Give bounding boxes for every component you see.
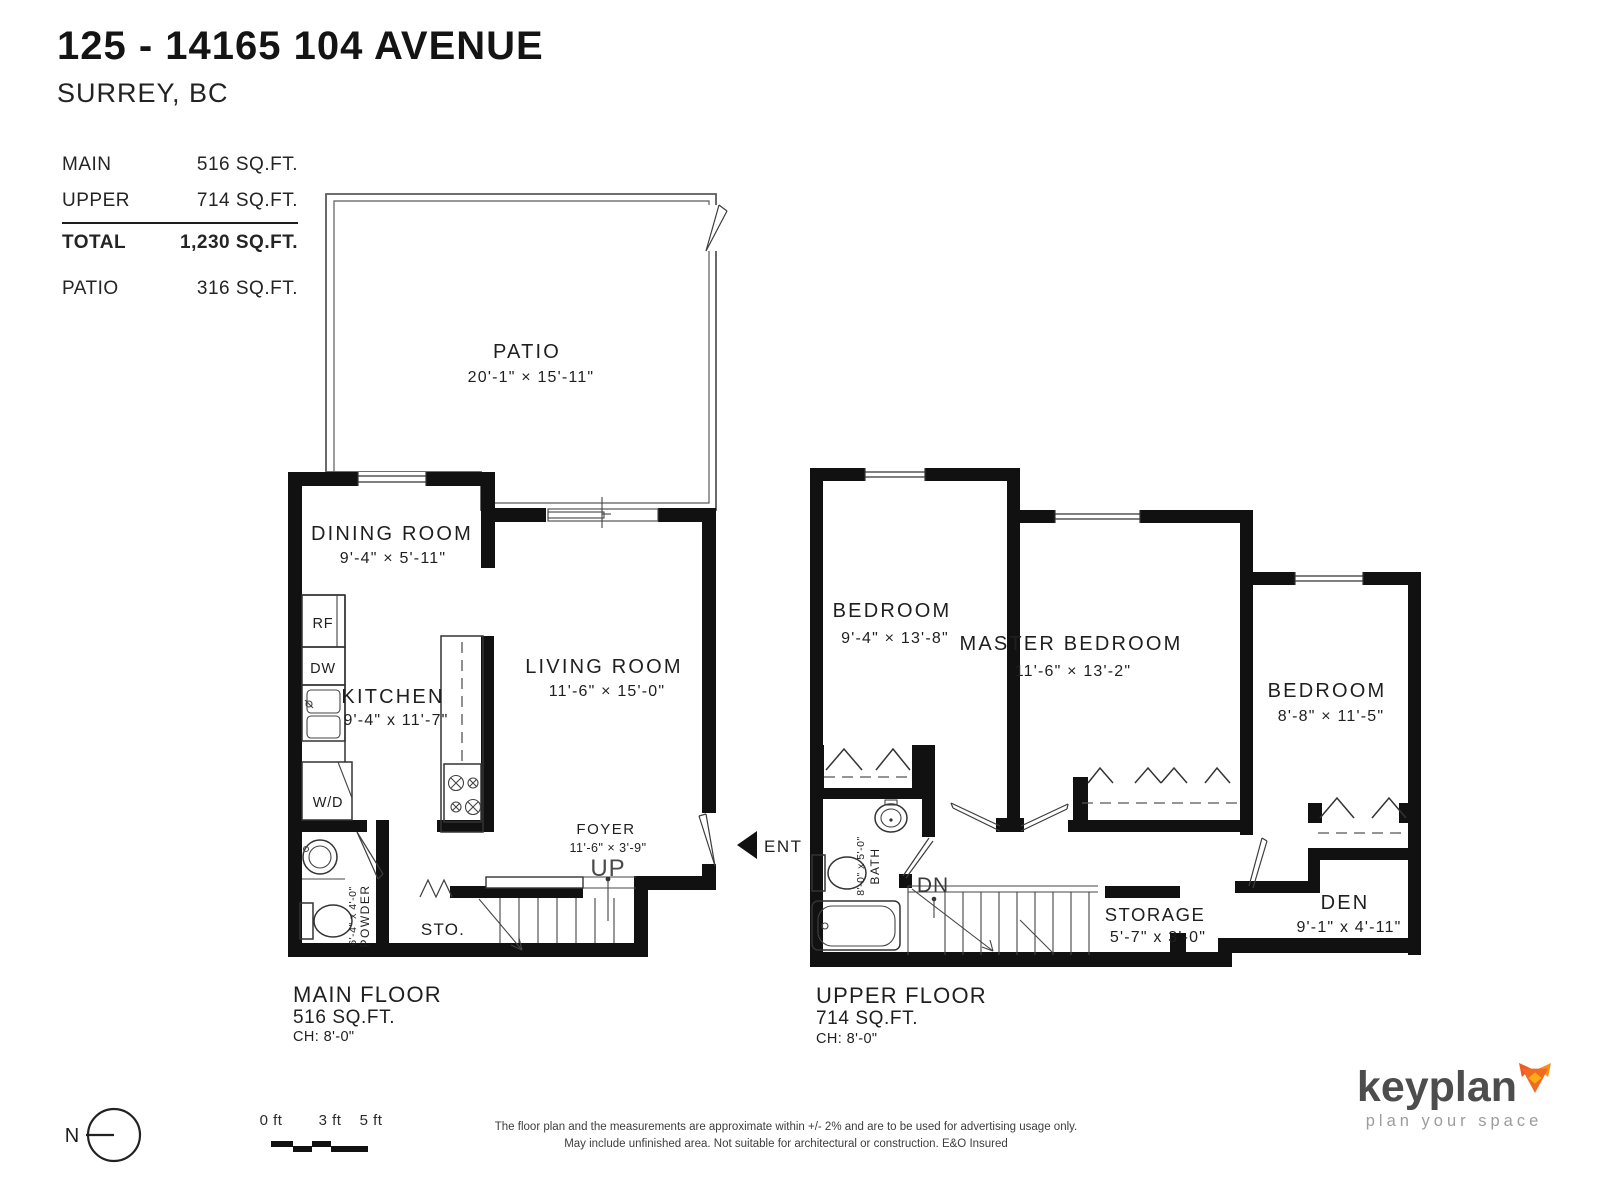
stairs-down-label: DN bbox=[917, 874, 949, 897]
floorplan-drawing: PATIO 20'-1" × 15'-11" bbox=[0, 0, 1600, 1200]
upper-floor-caption-area: 714 SQ.FT. bbox=[816, 1008, 918, 1029]
disclaimer-line-2: May include unfinished area. Not suitabl… bbox=[480, 1136, 1092, 1153]
den-dims: 9'-1" x 4'-11" bbox=[1296, 919, 1401, 936]
disclaimer-line-1: The floor plan and the measurements are … bbox=[480, 1119, 1092, 1136]
bathtub bbox=[812, 901, 900, 950]
foyer-dims: 11'-6" × 3'-9" bbox=[569, 841, 646, 855]
window bbox=[1295, 572, 1363, 585]
closet-bifold-door bbox=[420, 880, 452, 897]
stairs-main bbox=[479, 877, 636, 950]
main-floor-caption-title: MAIN FLOOR bbox=[293, 982, 442, 1007]
kitchen-label: KITCHEN bbox=[341, 686, 444, 708]
master-door bbox=[1021, 804, 1068, 831]
main-floor-caption-ceiling: CH: 8'-0" bbox=[293, 1029, 354, 1045]
patio-dims: 20'-1" × 15'-11" bbox=[468, 369, 595, 386]
upper-floor-caption-title: UPPER FLOOR bbox=[816, 983, 987, 1008]
washer-dryer-label: W/D bbox=[313, 795, 344, 811]
stairs-up-label: UP bbox=[590, 855, 625, 882]
den-label: DEN bbox=[1321, 892, 1370, 914]
dining-room-label: DINING ROOM bbox=[311, 523, 473, 545]
window bbox=[865, 468, 925, 481]
bath-label: BATH bbox=[868, 847, 882, 884]
powder-sink bbox=[302, 840, 345, 879]
master-bedroom-label: MASTER BEDROOM bbox=[959, 633, 1182, 655]
north-indicator: N bbox=[58, 1098, 158, 1178]
patio-outline: PATIO 20'-1" × 15'-11" bbox=[326, 194, 727, 510]
bath-door bbox=[903, 838, 933, 878]
north-label: N bbox=[65, 1125, 79, 1147]
patio-label: PATIO bbox=[493, 341, 561, 363]
upper-floor-plan: BEDROOM 9'-4" × 13'-8" MASTER BEDROOM 11… bbox=[810, 468, 1421, 1047]
upper-floor-caption-ceiling: CH: 8'-0" bbox=[816, 1031, 877, 1047]
kitchen-dims: 9'-4" x 11'-7" bbox=[343, 712, 448, 729]
master-bedroom-dims: 11'-6" × 13'-2" bbox=[1015, 663, 1132, 680]
disclaimer: The floor plan and the measurements are … bbox=[480, 1119, 1092, 1153]
entry-arrow-icon bbox=[737, 831, 757, 859]
storage-label: STORAGE bbox=[1105, 904, 1206, 925]
fridge-label: RF bbox=[313, 616, 334, 632]
brand-name: keyplan bbox=[1357, 1066, 1517, 1109]
scale-label-3: 3 ft bbox=[319, 1112, 342, 1129]
brand-tagline: plan your space bbox=[1340, 1112, 1568, 1131]
entry-label: ENT bbox=[764, 837, 803, 856]
scale-bar: 0 ft 3 ft 5 ft bbox=[248, 1103, 398, 1158]
scale-label-5: 5 ft bbox=[360, 1112, 383, 1129]
brand-logo: keyplan plan your space bbox=[1340, 1066, 1568, 1131]
window bbox=[1055, 510, 1140, 523]
bedroom-left-dims: 9'-4" × 13'-8" bbox=[841, 630, 949, 647]
main-floor-plan: ENT DINING ROOM 9'-4" × 5'-11" KITCHEN 9… bbox=[288, 472, 803, 1045]
scale-label-0: 0 ft bbox=[260, 1112, 283, 1129]
den-bedroom-door bbox=[1249, 838, 1267, 888]
floorplan-page: 125 - 14165 104 AVENUE SURREY, BC MAIN 5… bbox=[0, 0, 1600, 1200]
main-floor-caption-area: 516 SQ.FT. bbox=[293, 1007, 395, 1028]
powder-label: POWDER bbox=[358, 885, 372, 948]
foyer-label: FOYER bbox=[576, 821, 635, 838]
fox-logo-icon bbox=[1519, 1060, 1551, 1096]
bath-sink bbox=[875, 800, 907, 832]
washer-dryer bbox=[302, 762, 352, 820]
bath-dims: 8'-0" x 5'-0" bbox=[855, 836, 867, 895]
dishwasher-label: DW bbox=[310, 661, 336, 677]
bedroom-door bbox=[951, 803, 1000, 831]
toilet bbox=[300, 903, 352, 939]
living-room-dims: 11'-6" × 15'-0" bbox=[549, 683, 666, 700]
storage-closet-label: STO. bbox=[421, 920, 465, 939]
sliding-door bbox=[546, 497, 658, 528]
bedroom-right-dims: 8'-8" × 11'-5" bbox=[1278, 708, 1384, 725]
closet-hangers bbox=[1318, 798, 1406, 833]
bedroom-left-label: BEDROOM bbox=[833, 600, 952, 622]
living-room-label: LIVING ROOM bbox=[525, 656, 683, 678]
stove bbox=[444, 764, 481, 822]
kitchen-sink bbox=[302, 685, 345, 741]
storage-dims: 5'-7" x 3'-0" bbox=[1110, 929, 1206, 946]
window bbox=[358, 472, 426, 486]
entry-door bbox=[699, 814, 715, 866]
bedroom-right-label: BEDROOM bbox=[1268, 680, 1387, 702]
dining-room-dims: 9'-4" × 5'-11" bbox=[340, 550, 446, 567]
closet-hangers bbox=[1082, 768, 1238, 803]
powder-dims: 6'-4" x 4'-0" bbox=[347, 886, 359, 945]
scale-bar-segments bbox=[271, 1141, 368, 1152]
closet-hangers bbox=[824, 749, 912, 777]
